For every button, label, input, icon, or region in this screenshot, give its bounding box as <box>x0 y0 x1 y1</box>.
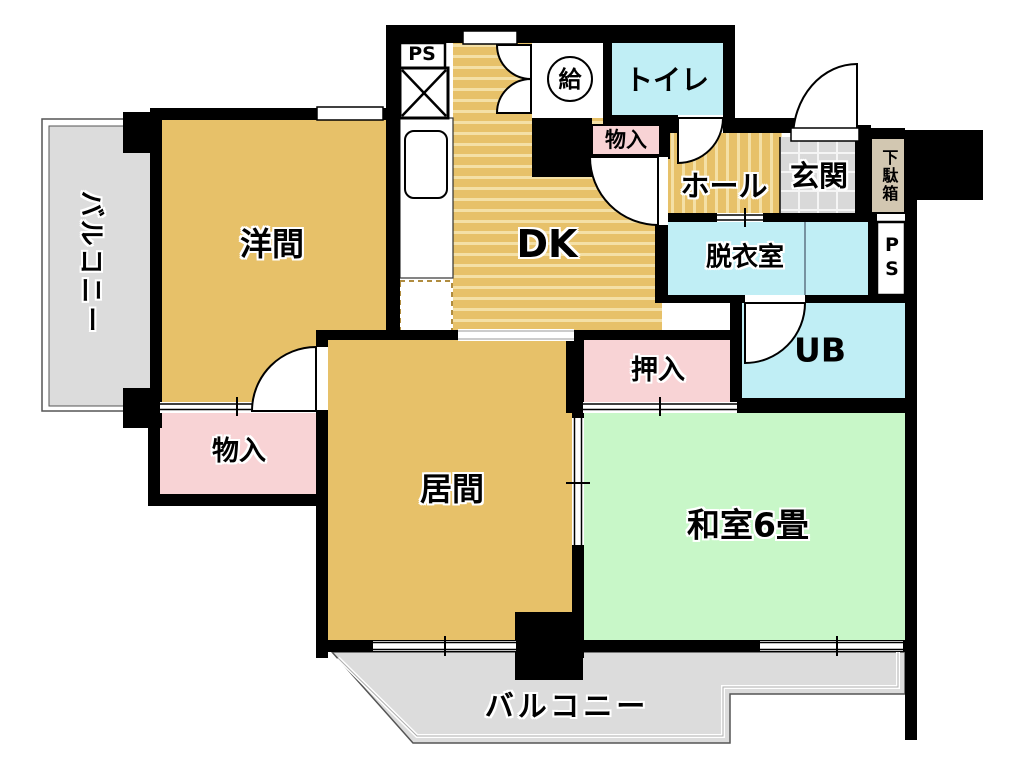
door-entrance-slab <box>791 128 859 141</box>
pillar-block-kitchen <box>532 118 592 177</box>
doorway-western-living <box>316 347 328 410</box>
dressing-room-label: 脱衣室 <box>706 244 784 271</box>
dining-kitchen-label: DK <box>517 225 578 265</box>
balcony-left-label: バルコニー <box>76 191 103 335</box>
western-room-label: 洋間 <box>240 228 304 262</box>
refrigerator-space <box>400 281 452 331</box>
closet-label: 押入 <box>631 357 685 385</box>
water-heater-label: 給 <box>559 68 582 92</box>
hall-label: ホール <box>680 171 767 201</box>
kitchen-counter <box>400 118 453 278</box>
pipe-space-top-label: PS <box>408 45 436 65</box>
living-room-label: 居間 <box>420 473 484 507</box>
balcony-bottom-label: バルコニー <box>485 691 649 721</box>
storage-top-label: 物入 <box>605 129 647 151</box>
window-kitchen-top <box>463 31 517 44</box>
shoe-cabinet-label: 下駄箱 <box>880 149 897 203</box>
toilet-label: トイレ <box>625 65 709 94</box>
entrance-label: 玄関 <box>790 161 848 191</box>
pillar-block-bottom <box>515 612 583 680</box>
pipe-space-right-label: PS <box>881 234 901 282</box>
storage-left-label: 物入 <box>212 438 266 466</box>
pipe-shaft-x-box <box>400 68 448 118</box>
unit-bath-label: UB <box>794 334 846 369</box>
door-entrance <box>793 64 857 138</box>
doorway-unit-bath <box>745 295 805 303</box>
floor-plan-drawing <box>0 0 1024 777</box>
window-western-room <box>317 107 383 120</box>
japanese-room-label: 和室6畳 <box>687 509 809 544</box>
opening-dk-living <box>458 329 574 341</box>
kitchen-sink <box>405 131 447 198</box>
floor-plan: 洋間 DK 居間 和室6畳 トイレ 物入 ホール 玄関 下駄箱 PS PS 脱衣… <box>0 0 1024 777</box>
